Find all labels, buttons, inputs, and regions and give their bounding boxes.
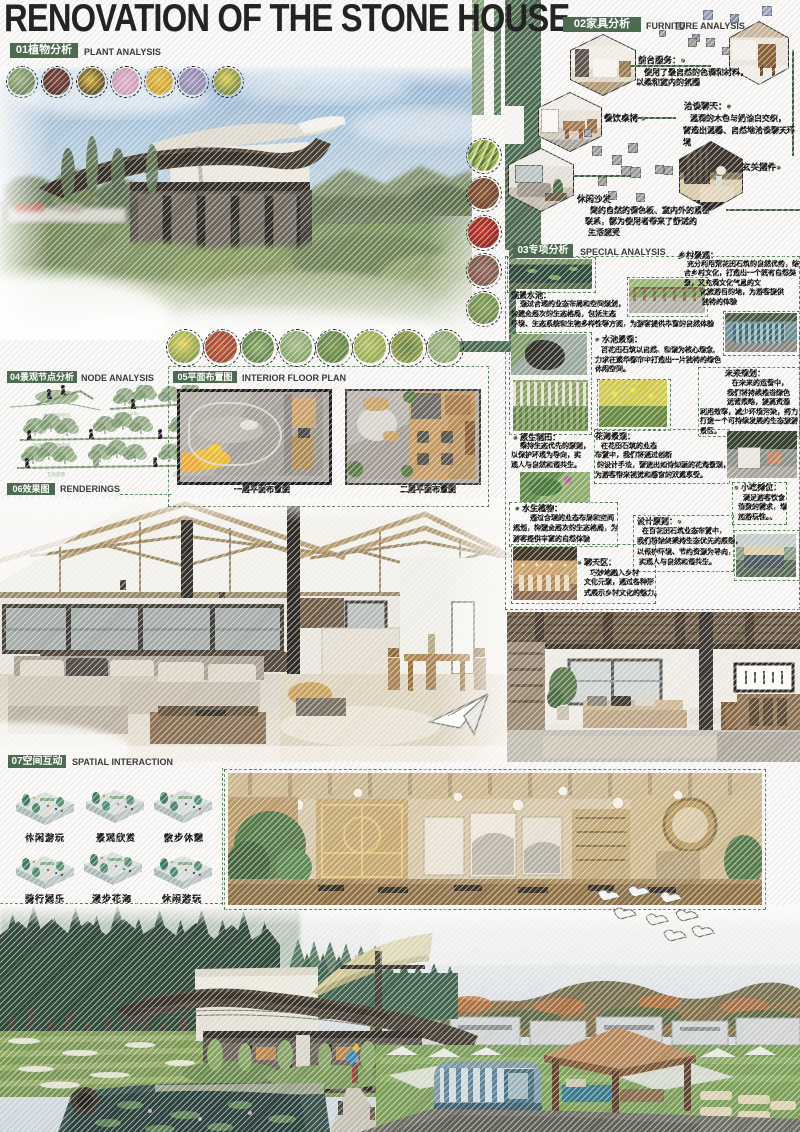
svg-text:互动游憩: 互动游憩 [47,471,65,478]
svg-text:srhv: srhv [130,411,139,416]
